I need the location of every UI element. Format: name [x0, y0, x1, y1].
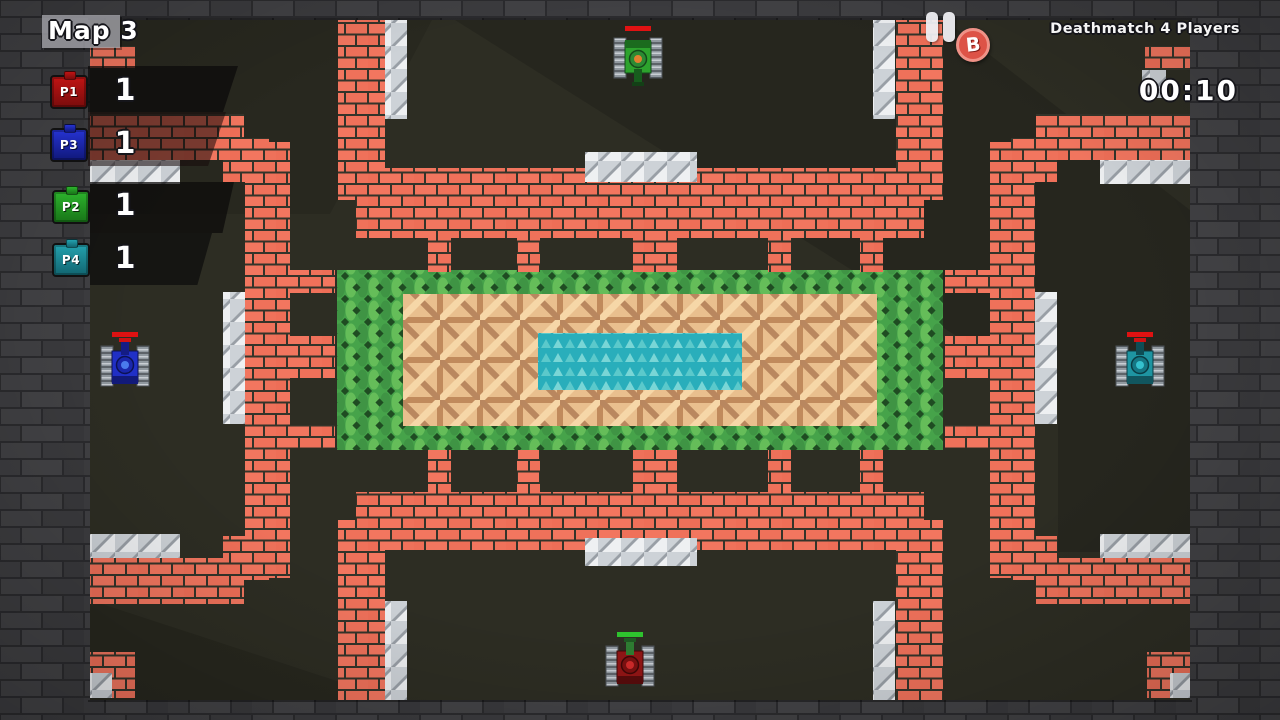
player-badge-p2: P2 — [52, 190, 90, 224]
brick-wall — [1036, 558, 1190, 604]
brick-wall — [338, 520, 385, 700]
brick-wall — [290, 336, 335, 378]
tank-turret-bump — [64, 71, 76, 80]
center-zone — [337, 270, 943, 450]
metal-column — [873, 601, 895, 700]
brick-pillar — [428, 450, 451, 495]
metal-block — [90, 534, 180, 558]
brick-wall — [245, 142, 290, 578]
metal-column — [873, 20, 895, 119]
brick-pillar — [517, 238, 540, 272]
brick-wall — [290, 425, 335, 448]
water-area — [538, 333, 742, 390]
player-badge-label: P4 — [62, 253, 80, 267]
player-badge-label: P2 — [62, 200, 80, 214]
brick-pillar — [633, 450, 677, 495]
brick-wall — [990, 142, 1035, 578]
brick-pillar — [860, 238, 883, 272]
pause-icon — [943, 12, 955, 42]
brick-pillar — [428, 238, 451, 272]
metal-column — [385, 20, 407, 119]
metal-block — [90, 673, 112, 698]
frame-right — [1190, 0, 1280, 720]
metal-block — [585, 152, 697, 182]
brick-pillar — [633, 238, 677, 272]
bomb-coin-letter: B — [965, 33, 982, 56]
frame-top — [0, 0, 1280, 20]
pause-icon — [926, 12, 938, 42]
tank-turret-bump — [66, 239, 78, 248]
metal-block — [1100, 160, 1190, 184]
brick-wall — [945, 270, 990, 293]
metal-block — [1100, 534, 1190, 558]
brick-pillar — [517, 450, 540, 495]
brick-wall — [1145, 46, 1190, 70]
brick-wall — [945, 336, 990, 378]
game-screen: Map 3 P1 P3 P2 P4 1 1 1 1 Deathmatch 4 P… — [0, 0, 1280, 720]
player-badge-p3: P3 — [50, 128, 88, 162]
tank-turret-bump — [66, 186, 78, 195]
brick-pillar — [860, 450, 883, 495]
brick-pillar — [768, 450, 791, 495]
player-badge-label: P1 — [60, 85, 78, 99]
bomb-coin-badge: B — [956, 28, 990, 62]
brick-wall — [1036, 114, 1190, 160]
score-p2: 1 — [105, 188, 145, 223]
player-badge-label: P3 — [60, 138, 78, 152]
brick-wall — [356, 192, 924, 238]
brick-wall — [338, 20, 385, 200]
timer: 00:10 — [1139, 74, 1238, 107]
mode-label: Deathmatch 4 Players — [1050, 21, 1240, 37]
brick-wall — [896, 20, 943, 200]
score-p3: 1 — [105, 126, 145, 161]
frame-bottom — [0, 700, 1280, 720]
tank-turret-bump — [64, 124, 76, 133]
brick-wall — [945, 425, 990, 448]
player-badge-p4: P4 — [52, 243, 90, 277]
map-title: Map 3 — [48, 16, 139, 45]
brick-wall — [290, 270, 335, 293]
score-p4: 1 — [105, 241, 145, 276]
score-p1: 1 — [105, 73, 145, 108]
metal-block — [1170, 673, 1192, 698]
brick-wall — [90, 558, 244, 604]
player-badge-p1: P1 — [50, 75, 88, 109]
metal-block — [585, 538, 697, 566]
metal-column — [385, 601, 407, 700]
brick-pillar — [768, 238, 791, 272]
brick-wall — [896, 520, 943, 700]
metal-column — [1035, 292, 1057, 424]
metal-column — [223, 292, 245, 424]
